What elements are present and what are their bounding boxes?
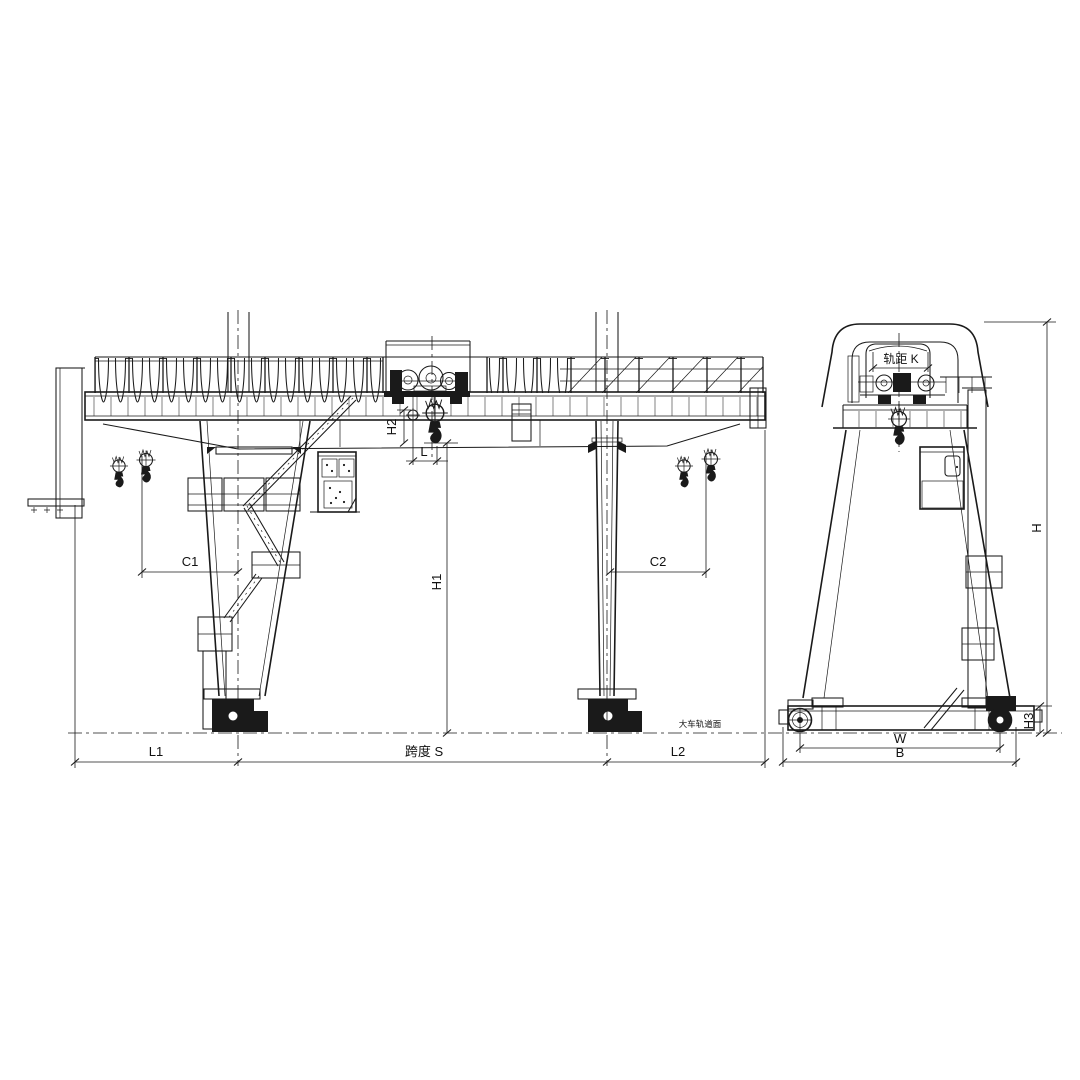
- dim-label-h1: H1: [429, 574, 444, 591]
- dim-label-k: 轨距 K: [883, 352, 918, 366]
- right-leg: [578, 421, 642, 732]
- travel-wheel-left: [788, 700, 813, 732]
- main-girder: [85, 388, 766, 449]
- gantry-crane-technical-drawing: 大车轨道面 L1 跨度 S L2 C1 C2 H1 H2 L: [0, 0, 1080, 1080]
- side-access-ladder: [962, 388, 1002, 708]
- travel-wheel-right: [986, 696, 1016, 732]
- side-cabin: [920, 447, 964, 509]
- dim-label-l1: L1: [149, 744, 163, 759]
- operator-cabin: [310, 452, 360, 512]
- side-elevation-view: [779, 324, 1042, 732]
- front-elevation-view: [28, 312, 766, 732]
- aux-hook-left-pair: [110, 450, 156, 487]
- left-end-ladder: [28, 368, 85, 518]
- aux-hook-right-pair: [675, 449, 721, 487]
- dimensions-front: L1 跨度 S L2 C1 C2 H1 H2 L: [71, 407, 769, 769]
- dim-label-c1: C1: [182, 554, 199, 569]
- dim-label-span: 跨度 S: [405, 744, 444, 759]
- girder-end-band: [833, 405, 977, 428]
- dim-label-w: W: [894, 731, 907, 746]
- dim-label-l2: L2: [671, 744, 685, 759]
- dim-label-l: L: [420, 444, 427, 459]
- dim-label-h3: H3: [1021, 713, 1036, 730]
- trolley-crab: [384, 341, 470, 404]
- dim-label-h: H: [1029, 523, 1044, 532]
- side-legs: [803, 430, 1010, 730]
- dim-label-b: B: [896, 745, 905, 760]
- rail-note: 大车轨道面: [679, 719, 722, 729]
- dim-label-c2: C2: [650, 554, 667, 569]
- left-a-frame-leg: [188, 396, 360, 732]
- dim-label-h2: H2: [384, 419, 399, 436]
- wheel-bogie-left: [204, 689, 268, 732]
- leg-stairs: [224, 396, 356, 622]
